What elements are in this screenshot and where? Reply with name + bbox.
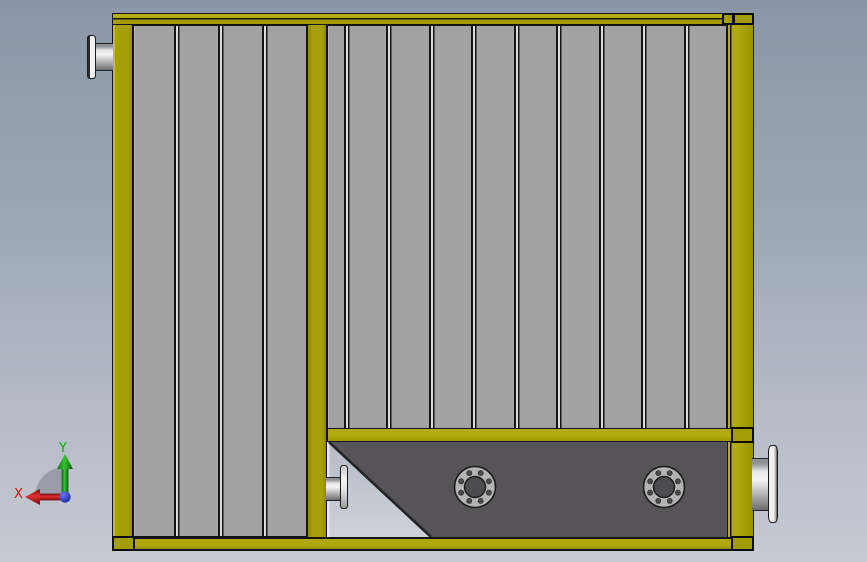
wall-panel[interactable] [431,26,471,428]
hopper-chamber[interactable] [327,442,727,537]
frame-corner-bottom-left [112,536,135,551]
frame-right-column[interactable] [727,13,754,551]
origin-sphere[interactable] [59,491,70,502]
frame-left-column[interactable] [112,13,133,551]
wall-panel[interactable] [346,26,386,428]
hopper-flange-right[interactable] [644,467,685,508]
right-nozzle-pipe[interactable] [752,458,769,511]
frame-joint-hopper-right [731,427,754,443]
left-wall-panels[interactable] [133,25,307,537]
y-axis-label: Y [58,441,67,456]
hopper-nozzle-pipe[interactable] [326,477,341,501]
y-axis-arrowhead[interactable] [57,454,73,469]
frame-corner-top-right [722,13,754,25]
wall-panel[interactable] [264,26,306,536]
wall-panel[interactable] [601,26,641,428]
wall-panel[interactable] [328,26,344,428]
hopper-nozzle-flange[interactable] [340,465,348,509]
right-nozzle-flange[interactable] [768,445,778,523]
x-axis-arrowhead[interactable] [25,489,40,505]
frame-corner-bottom-right [731,536,754,551]
cad-viewport[interactable]: Y X [0,0,867,562]
frame-middle-column[interactable] [307,13,327,551]
wall-panel[interactable] [176,26,218,536]
top-left-nozzle-pipe[interactable] [95,43,113,71]
wall-panel[interactable] [220,26,262,536]
orientation-triad[interactable]: Y X [10,428,85,513]
wall-panel[interactable] [516,26,556,428]
frame-top-beam[interactable] [112,13,754,25]
wall-panel[interactable] [686,26,726,428]
wall-panel[interactable] [558,26,598,428]
wall-panel[interactable] [134,26,174,536]
wall-panel[interactable] [473,26,513,428]
right-wall-panels[interactable] [327,25,727,429]
wall-panel[interactable] [643,26,683,428]
frame-bottom-beam[interactable] [112,537,754,551]
top-left-nozzle-flange[interactable] [87,35,96,79]
frame-hopper-beam[interactable] [327,428,754,442]
hopper-flange-left[interactable] [455,467,496,508]
x-axis-label: X [14,487,23,502]
wall-panel[interactable] [388,26,428,428]
